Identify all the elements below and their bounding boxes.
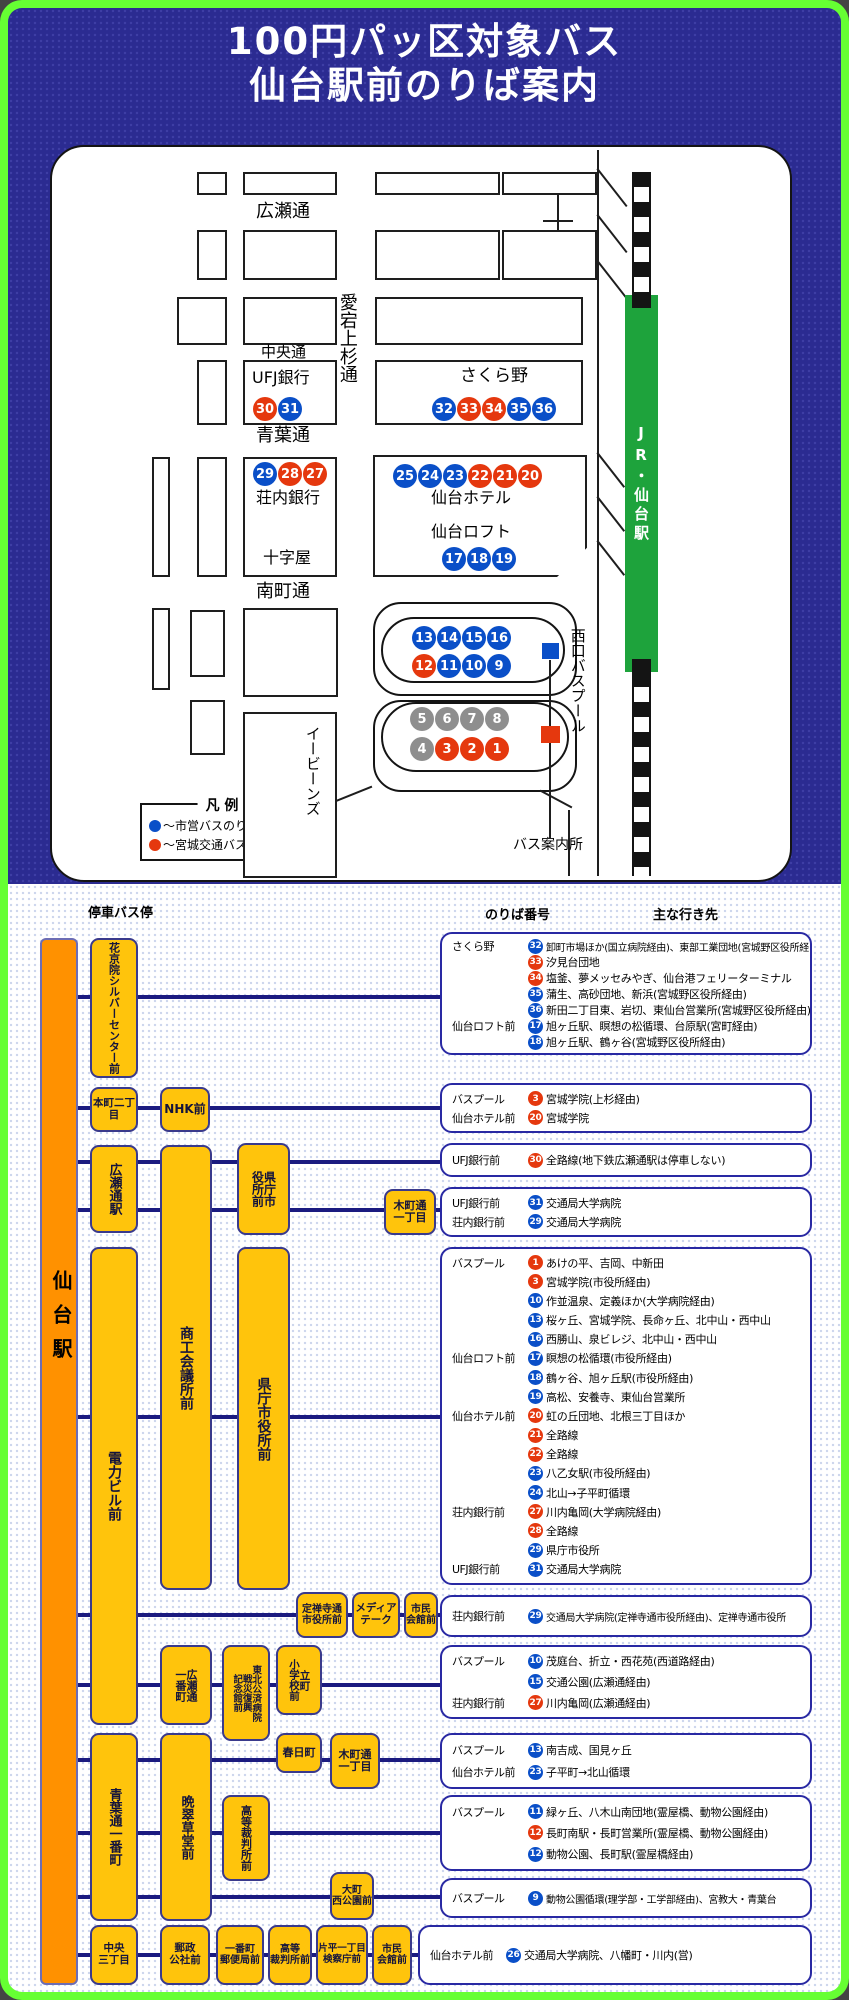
map-label-バス案内所: バス案内所 <box>513 838 583 853</box>
stand-number-badge-26: 26 <box>506 1948 521 1963</box>
sendai-station-bar: 仙台駅 <box>40 938 78 1985</box>
stand-number-badge-9: 9 <box>528 1891 543 1906</box>
bus-stop-label: 片平一丁目検察庁前 <box>318 1944 366 1965</box>
boarding-point-label: バスプール <box>452 1091 528 1107</box>
city-block <box>190 700 225 755</box>
destination-text: 旭ヶ丘駅、瞑想の松循環、台原駅(宮町経由) <box>546 1018 757 1034</box>
stand-number-badge-3: 3 <box>528 1091 543 1106</box>
stand-number-badge-29: 29 <box>528 1214 543 1229</box>
map-stand-10: 10 <box>462 654 486 678</box>
map-label-十字屋: 十字屋 <box>263 550 311 567</box>
city-block <box>190 610 225 677</box>
bus-stop-label: 一番町郵便局前 <box>220 1944 260 1966</box>
header-stand-number: のりば番号 <box>485 904 550 923</box>
stand-number-badge-11: 11 <box>528 1804 543 1819</box>
map-label-仙台ホテル: 仙台ホテル <box>431 490 511 507</box>
destination-text: 交通局大学病院 <box>546 1561 621 1577</box>
map-stand-19: 19 <box>492 547 516 571</box>
stand-number-badge-35: 35 <box>528 987 543 1002</box>
destination-row: 荘内銀行前29交通局大学病院 <box>452 1214 800 1230</box>
destination-text: 虹の丘団地、北根三丁目ほか <box>546 1408 685 1424</box>
destination-row: バスプール11緑ヶ丘、八木山南団地(霊屋橋、動物公園経由) <box>452 1804 800 1820</box>
map-label-仙台ロフト: 仙台ロフト <box>431 524 511 541</box>
bus-stop-label: 広瀬通駅 <box>108 1163 121 1215</box>
bus-stop-label: 立町小学校前 <box>289 1659 310 1701</box>
bus-stop-本町二丁目: 本町二丁目 <box>90 1087 138 1132</box>
stand-number-badge-29: 29 <box>528 1543 543 1558</box>
map-label-さくら野: さくら野 <box>460 368 528 386</box>
boarding-point-label: 仙台ロフト前 <box>452 1018 528 1034</box>
bus-stop-県庁市役所前: 県庁市役所前 <box>237 1247 290 1590</box>
bus-info-marker-red <box>541 726 560 743</box>
map-stand-22: 22 <box>468 464 492 488</box>
boarding-point-label: さくら野 <box>452 938 528 954</box>
bus-info-marker-blue <box>542 643 559 659</box>
map-label-南町通: 南町通 <box>256 583 310 602</box>
destination-text: 汐見台団地 <box>546 954 600 970</box>
boarding-point-label: 仙台ホテル前 <box>452 1408 528 1424</box>
route-info-box-4: UFJ銀行前31交通局大学病院荘内銀行前29交通局大学病院 <box>440 1187 812 1237</box>
bus-stop-春日町: 春日町 <box>276 1733 322 1773</box>
destination-text: 南吉成、国見ヶ丘 <box>546 1742 632 1758</box>
bus-stop-label: 本町二丁目 <box>92 1098 136 1122</box>
bus-stop-NHK前: NHK前 <box>160 1087 210 1132</box>
destination-text: 交通局大学病院 <box>546 1214 621 1230</box>
bus-stop-label: 花京院シルバーセンター前 <box>109 942 120 1074</box>
stand-number-badge-23: 23 <box>528 1466 543 1481</box>
bus-stop-木町通一丁目: 木町通一丁目 <box>384 1189 436 1235</box>
destination-text: 塩釜、夢メッセみやぎ、仙台港フェリーターミナル <box>546 970 792 986</box>
map-stand-1: 1 <box>485 737 509 761</box>
bus-stop-広瀬通一番町: 広瀬通一番町 <box>160 1645 212 1725</box>
route-info-box-1: さくら野32卸町市場ほか(国立病院経由)、東部工業団地(宮城野区役所経由)33汐… <box>440 932 812 1055</box>
destination-text: あけの平、吉岡、中新田 <box>546 1255 664 1271</box>
bus-stop-広瀬通駅: 広瀬通駅 <box>90 1145 138 1233</box>
destination-row: 13桜ヶ丘、宮城学院、長命ヶ丘、北中山・西中山 <box>452 1312 800 1328</box>
bus-stop-label: 木町通一丁目 <box>339 1749 372 1774</box>
boarding-point-label: 仙台ロフト前 <box>452 1350 528 1366</box>
boarding-point-label: 仙台ホテル前 <box>430 1947 506 1963</box>
destination-row: 23八乙女駅(市役所経由) <box>452 1465 800 1481</box>
municipal-bus-dot-icon <box>149 820 161 832</box>
stand-number-badge-29: 29 <box>528 1609 543 1624</box>
boarding-point-label: 荘内銀行前 <box>452 1504 528 1520</box>
destination-text: 蒲生、高砂団地、新浜(宮城野区役所経由) <box>546 986 747 1002</box>
boarding-point-label: バスプール <box>452 1255 528 1271</box>
bus-stop-label: 春日町 <box>283 1747 316 1759</box>
destination-row: 29県庁市役所 <box>452 1542 800 1558</box>
boarding-point-label: UFJ銀行前 <box>452 1561 528 1577</box>
map-label-広瀬通: 広瀬通 <box>256 203 310 222</box>
city-block <box>197 360 227 425</box>
bus-stop-市民会館前: 市民会館前 <box>372 1925 412 1985</box>
boarding-point-label: 仙台ホテル前 <box>452 1110 528 1126</box>
destination-row: 荘内銀行前27川内亀岡(広瀬通経由) <box>452 1695 800 1711</box>
destination-row: 仙台ホテル前20虹の丘団地、北根三丁目ほか <box>452 1408 800 1424</box>
legend-title: 凡 例 <box>198 795 247 815</box>
sendai-station-label: 仙台駅 <box>42 1270 76 1372</box>
city-block <box>197 457 227 577</box>
destination-row: 荘内銀行前29交通局大学病院(定禅寺通市役所経由)、定禅寺通市役所 <box>452 1608 800 1624</box>
stand-number-badge-30: 30 <box>528 1153 543 1168</box>
map-stand-13: 13 <box>412 626 436 650</box>
city-block <box>243 608 338 697</box>
boarding-point-label: バスプール <box>452 1653 528 1669</box>
route-info-box-6: 荘内銀行前29交通局大学病院(定禅寺通市役所経由)、定禅寺通市役所 <box>440 1595 812 1637</box>
bus-info-pointer-line <box>549 660 551 838</box>
stand-number-badge-3: 3 <box>528 1274 543 1289</box>
map-stand-32: 32 <box>432 397 456 421</box>
map-stand-16: 16 <box>487 626 511 650</box>
bus-stop-県庁市役所前: 県庁市役所前 <box>237 1143 290 1235</box>
destination-row: バスプール9動物公園循環(理学部・工学部経由)、宮教大・青葉台 <box>452 1890 800 1906</box>
destination-row: 10作並温泉、定義ほか(大学病院経由) <box>452 1293 800 1309</box>
map-label-中央通: 中央通 <box>261 345 306 361</box>
map-stand-36: 36 <box>532 397 556 421</box>
map-stand-15: 15 <box>462 626 486 650</box>
map-stand-35: 35 <box>507 397 531 421</box>
bus-stop-label: 電力ビル前 <box>107 1451 121 1521</box>
destination-row: 18旭ヶ丘駅、鶴ヶ谷(宮城野区役所経由) <box>452 1034 800 1050</box>
route-info-box-11: 仙台ホテル前26交通局大学病院、八幡町・川内(営) <box>418 1925 812 1985</box>
destination-text: 全路線 <box>546 1446 578 1462</box>
stand-number-badge-31: 31 <box>528 1562 543 1577</box>
bus-stop-メディアテーク: メディアテーク <box>352 1592 400 1638</box>
north-arrow-cross <box>543 220 573 222</box>
bus-stop-label: 高等裁判所前 <box>270 1944 310 1966</box>
destination-row: 28全路線 <box>452 1523 800 1539</box>
bus-stop-高等裁判所前: 高等裁判所前 <box>222 1795 270 1881</box>
boarding-point-label: UFJ銀行前 <box>452 1152 528 1168</box>
stand-number-badge-1: 1 <box>528 1255 543 1270</box>
city-block <box>243 230 337 280</box>
destination-row: 24北山→子平町循環 <box>452 1485 800 1501</box>
destination-row: 16西勝山、泉ビレジ、北中山・西中山 <box>452 1331 800 1347</box>
map-stand-3: 3 <box>435 737 459 761</box>
city-block <box>197 230 227 280</box>
destination-text: 交通局大学病院(定禅寺通市役所経由)、定禅寺通市役所 <box>546 1609 786 1624</box>
stand-number-badge-17: 17 <box>528 1351 543 1366</box>
destination-text: 茂庭台、折立・西花苑(西道路経由) <box>546 1653 714 1669</box>
railway-checker-bottom <box>632 672 651 876</box>
map-stand-12: 12 <box>412 654 436 678</box>
bus-stop-晩翠草堂前: 晩翠草堂前 <box>160 1733 212 1921</box>
bus-stop-大町西公園前: 大町西公園前 <box>330 1872 374 1920</box>
jr-sendai-station-bar: JR・仙台駅 <box>625 295 658 672</box>
stand-number-badge-23: 23 <box>528 1765 543 1780</box>
bus-stop-label: 中央三丁目 <box>98 1943 130 1967</box>
header-stops: 停車バス停 <box>88 902 153 921</box>
bus-stop-label: NHK前 <box>164 1103 205 1116</box>
destination-row: 仙台ホテル前23子平町→北山循環 <box>452 1764 800 1780</box>
boarding-point-label: 荘内銀行前 <box>452 1608 528 1624</box>
map-stand-30: 30 <box>253 397 277 421</box>
destination-row: 12動物公園、長町駅(霊屋橋経由) <box>452 1846 800 1862</box>
map-label-青葉通: 青葉通 <box>256 427 310 446</box>
bus-stop-label: 青葉通一番町 <box>108 1788 121 1866</box>
destination-text: 交通局大学病院、八幡町・川内(営) <box>524 1947 692 1963</box>
stand-number-badge-12: 12 <box>528 1847 543 1862</box>
map-label-UFJ銀行: UFJ銀行 <box>252 370 310 387</box>
bus-guide-poster: 100円パッ区対象バス 仙台駅前のりば案内 JR・仙台駅 N 凡 例 〜市営バス… <box>0 0 849 2000</box>
city-block <box>243 297 337 345</box>
stand-number-badge-22: 22 <box>528 1447 543 1462</box>
stand-number-badge-20: 20 <box>528 1110 543 1125</box>
destination-row: 仙台ホテル前20宮城学院 <box>452 1110 800 1126</box>
destination-row: バスプール1あけの平、吉岡、中新田 <box>452 1255 800 1271</box>
stand-number-badge-17: 17 <box>528 1019 543 1034</box>
bus-stop-郵政公社前: 郵政公社前 <box>160 1925 210 1985</box>
stand-number-badge-18: 18 <box>528 1035 543 1050</box>
railway-checker-top <box>632 172 651 295</box>
map-stand-25: 25 <box>393 464 417 488</box>
bus-stop-label: 東北公済病院戦災復興記念館前 <box>232 1665 261 1722</box>
city-block <box>152 608 170 690</box>
stand-number-badge-20: 20 <box>528 1408 543 1423</box>
destination-text: 宮城学院 <box>546 1110 589 1126</box>
header-destinations: 主な行き先 <box>653 904 718 923</box>
destination-row: 仙台ロフト前17旭ヶ丘駅、瞑想の松循環、台原駅(宮町経由) <box>452 1018 800 1034</box>
stand-number-badge-34: 34 <box>528 971 543 986</box>
map-stand-21: 21 <box>493 464 517 488</box>
map-label-荘内銀行: 荘内銀行 <box>256 490 320 507</box>
destination-row: UFJ銀行前31交通局大学病院 <box>452 1561 800 1577</box>
rail-cap-bottom <box>632 659 651 672</box>
map-stand-7: 7 <box>460 707 484 731</box>
bus-stop-木町通一丁目: 木町通一丁目 <box>330 1733 380 1789</box>
stand-number-badge-24: 24 <box>528 1485 543 1500</box>
destination-text: 川内亀岡(大学病院経由) <box>546 1504 661 1520</box>
destination-text: 宮城学院(市役所経由) <box>546 1274 650 1290</box>
map-stand-20: 20 <box>518 464 542 488</box>
bus-stop-label: 商工会議所前 <box>179 1326 193 1410</box>
destination-text: 動物公園、長町駅(霊屋橋経由) <box>546 1846 693 1862</box>
boarding-point-label: 荘内銀行前 <box>452 1214 528 1230</box>
city-block <box>375 172 500 195</box>
city-block <box>243 712 337 878</box>
destination-row: バスプール10茂庭台、折立・西花苑(西道路経由) <box>452 1653 800 1669</box>
stand-number-badge-15: 15 <box>528 1674 543 1689</box>
bus-stop-定禅寺通市役所前: 定禅寺通市役所前 <box>296 1592 348 1638</box>
destination-row: 33汐見台団地 <box>452 954 800 970</box>
boarding-point-label: 仙台ホテル前 <box>452 1764 528 1780</box>
destination-row: 22全路線 <box>452 1446 800 1462</box>
destination-text: 八乙女駅(市役所経由) <box>546 1465 650 1481</box>
map-stand-34: 34 <box>482 397 506 421</box>
stand-number-badge-27: 27 <box>528 1504 543 1519</box>
route-info-box-5: バスプール1あけの平、吉岡、中新田3宮城学院(市役所経由)10作並温泉、定義ほか… <box>440 1247 812 1585</box>
city-block <box>152 457 170 577</box>
bus-stop-label: 広瀬通一番町 <box>175 1669 197 1702</box>
stand-number-badge-33: 33 <box>528 955 543 970</box>
destination-text: 県庁市役所 <box>546 1542 600 1558</box>
city-block <box>243 172 337 195</box>
destination-text: 全路線 <box>546 1427 578 1443</box>
bus-stop-高等裁判所前: 高等裁判所前 <box>268 1925 312 1985</box>
map-stand-14: 14 <box>437 626 461 650</box>
destination-row: 21全路線 <box>452 1427 800 1443</box>
destination-text: 新田二丁目東、岩切、東仙台営業所(宮城野区役所経由) <box>546 1002 811 1018</box>
city-block <box>502 172 597 195</box>
miyagi-kotsu-dot-icon <box>149 839 161 851</box>
bus-stop-label: 市民会館前 <box>406 1604 436 1626</box>
map-label-イービーンズ: イービーンズ <box>304 726 320 816</box>
destination-text: 長町南駅・長町営業所(霊屋橋、動物公園経由) <box>546 1825 768 1841</box>
destination-text: 瞑想の松循環(市役所経由) <box>546 1350 672 1366</box>
map-label-愛宕上杉通: 愛宕上杉通 <box>337 293 356 383</box>
destination-text: 北山→子平町循環 <box>546 1485 630 1501</box>
destination-text: 桜ヶ丘、宮城学院、長命ヶ丘、北中山・西中山 <box>546 1312 771 1328</box>
map-label-西口バスプール: 西口バスプール <box>569 628 585 733</box>
city-block <box>177 297 227 345</box>
boarding-point-label: バスプール <box>452 1742 528 1758</box>
city-block <box>375 230 500 280</box>
map-stand-5: 5 <box>410 707 434 731</box>
stand-number-badge-36: 36 <box>528 1003 543 1018</box>
boarding-point-label: バスプール <box>452 1804 528 1820</box>
map-stand-18: 18 <box>467 547 491 571</box>
bus-stop-電力ビル前: 電力ビル前 <box>90 1247 138 1725</box>
destination-text: 全路線 <box>546 1523 578 1539</box>
bus-stop-東北公済病院戦災復興記念館前: 東北公済病院戦災復興記念館前 <box>222 1645 270 1741</box>
destination-text: 西勝山、泉ビレジ、北中山・西中山 <box>546 1331 717 1347</box>
city-block <box>375 297 583 345</box>
bus-stop-label: 高等裁判所前 <box>241 1805 252 1871</box>
destination-row: UFJ銀行前30全路線(地下鉄広瀬通駅は停車しない) <box>452 1152 800 1168</box>
map-stand-24: 24 <box>418 464 442 488</box>
bus-stop-label: 大町西公園前 <box>332 1885 372 1907</box>
destination-text: 子平町→北山循環 <box>546 1764 630 1780</box>
rail-cap-top <box>632 295 651 308</box>
map-stand-23: 23 <box>443 464 467 488</box>
destination-row: 15交通公園(広瀬通経由) <box>452 1674 800 1690</box>
title-line1: 100円パッ区対象バス <box>0 20 849 64</box>
jr-station-label: JR・仙台駅 <box>631 424 652 544</box>
bus-stop-片平一丁目検察庁前: 片平一丁目検察庁前 <box>316 1925 368 1985</box>
bus-stop-青葉通一番町: 青葉通一番町 <box>90 1733 138 1921</box>
destination-text: 旭ヶ丘駅、鶴ヶ谷(宮城野区役所経由) <box>546 1034 725 1050</box>
bus-stop-label: 晩翠草堂前 <box>180 1795 193 1860</box>
destination-row: 3宮城学院(市役所経由) <box>452 1274 800 1290</box>
destination-row: 仙台ロフト前17瞑想の松循環(市役所経由) <box>452 1350 800 1366</box>
bus-stop-label: 県庁市役所前 <box>252 1171 276 1207</box>
destination-row: 34塩釜、夢メッセみやぎ、仙台港フェリーターミナル <box>452 970 800 986</box>
bus-stop-市民会館前: 市民会館前 <box>404 1592 438 1638</box>
destination-text: 全路線(地下鉄広瀬通駅は停車しない) <box>546 1152 725 1168</box>
stand-number-badge-12: 12 <box>528 1825 543 1840</box>
destination-text: 作並温泉、定義ほか(大学病院経由) <box>546 1293 714 1309</box>
stand-number-badge-18: 18 <box>528 1370 543 1385</box>
bus-stop-label: 木町通一丁目 <box>394 1200 427 1225</box>
bus-stop-商工会議所前: 商工会議所前 <box>160 1145 212 1590</box>
stand-number-badge-19: 19 <box>528 1389 543 1404</box>
bus-stop-立町小学校前: 立町小学校前 <box>276 1645 322 1715</box>
map-stand-17: 17 <box>442 547 466 571</box>
stand-number-badge-10: 10 <box>528 1293 543 1308</box>
destination-text: 緑ヶ丘、八木山南団地(霊屋橋、動物公園経由) <box>546 1804 768 1820</box>
stand-number-badge-13: 13 <box>528 1743 543 1758</box>
map-stand-8: 8 <box>485 707 509 731</box>
destination-text: 交通公園(広瀬通経由) <box>546 1674 650 1690</box>
destination-text: 交通局大学病院 <box>546 1195 621 1211</box>
bus-stop-label: 郵政公社前 <box>169 1943 201 1967</box>
map-stand-11: 11 <box>437 654 461 678</box>
boarding-point-label: UFJ銀行前 <box>452 1195 528 1211</box>
route-info-box-2: バスプール3宮城学院(上杉経由)仙台ホテル前20宮城学院 <box>440 1083 812 1133</box>
map-stand-28: 28 <box>278 462 302 486</box>
destination-row: 18鶴ヶ谷、旭ヶ丘駅(市役所経由) <box>452 1370 800 1386</box>
route-info-box-3: UFJ銀行前30全路線(地下鉄広瀬通駅は停車しない) <box>440 1143 812 1177</box>
destination-row: 35蒲生、高砂団地、新浜(宮城野区役所経由) <box>452 986 800 1002</box>
city-block <box>502 230 597 280</box>
destination-text: 川内亀岡(広瀬通経由) <box>546 1695 650 1711</box>
boarding-point-label: バスプール <box>452 1890 528 1906</box>
destination-row: バスプール3宮城学院(上杉経由) <box>452 1091 800 1107</box>
map-stand-27: 27 <box>303 462 327 486</box>
destination-text: 卸町市場ほか(国立病院経由)、東部工業団地(宮城野区役所経由) <box>546 939 812 954</box>
stand-number-badge-28: 28 <box>528 1523 543 1538</box>
route-info-box-9: バスプール11緑ヶ丘、八木山南団地(霊屋橋、動物公園経由)12長町南駅・長町営業… <box>440 1795 812 1871</box>
poster-title: 100円パッ区対象バス 仙台駅前のりば案内 <box>0 20 849 107</box>
bus-stop-中央三丁目: 中央三丁目 <box>90 1925 138 1985</box>
bus-stop-label: メディアテーク <box>355 1603 396 1627</box>
stand-number-badge-21: 21 <box>528 1428 543 1443</box>
destination-row: UFJ銀行前31交通局大学病院 <box>452 1195 800 1211</box>
stand-number-badge-16: 16 <box>528 1332 543 1347</box>
route-info-box-8: バスプール13南吉成、国見ヶ丘仙台ホテル前23子平町→北山循環 <box>440 1733 812 1789</box>
stand-number-badge-32: 32 <box>528 939 543 954</box>
destination-row: 12長町南駅・長町営業所(霊屋橋、動物公園経由) <box>452 1825 800 1841</box>
map-stand-29: 29 <box>253 462 277 486</box>
destination-text: 鶴ヶ谷、旭ヶ丘駅(市役所経由) <box>546 1370 693 1386</box>
title-line2: 仙台駅前のりば案内 <box>0 64 849 108</box>
destination-row: 仙台ホテル前26交通局大学病院、八幡町・川内(営) <box>430 1947 800 1963</box>
destination-text: 動物公園循環(理学部・工学部経由)、宮教大・青葉台 <box>546 1891 776 1906</box>
map-stand-33: 33 <box>457 397 481 421</box>
stand-number-badge-31: 31 <box>528 1195 543 1210</box>
destination-row: バスプール13南吉成、国見ヶ丘 <box>452 1742 800 1758</box>
destination-row: さくら野32卸町市場ほか(国立病院経由)、東部工業団地(宮城野区役所経由) <box>452 938 800 954</box>
stand-number-badge-13: 13 <box>528 1313 543 1328</box>
destination-row: 荘内銀行前27川内亀岡(大学病院経由) <box>452 1504 800 1520</box>
city-block <box>197 172 227 195</box>
bus-stop-一番町郵便局前: 一番町郵便局前 <box>216 1925 264 1985</box>
map-stand-31: 31 <box>278 397 302 421</box>
stand-number-badge-10: 10 <box>528 1654 543 1669</box>
bus-stop-花京院シルバーセンター前: 花京院シルバーセンター前 <box>90 938 138 1078</box>
destination-text: 宮城学院(上杉経由) <box>546 1091 640 1107</box>
bus-stop-label: 県庁市役所前 <box>257 1377 271 1461</box>
destination-row: 36新田二丁目東、岩切、東仙台営業所(宮城野区役所経由) <box>452 1002 800 1018</box>
bus-stop-label: 市民会館前 <box>377 1944 407 1966</box>
boarding-point-label: 荘内銀行前 <box>452 1695 528 1711</box>
route-info-box-7: バスプール10茂庭台、折立・西花苑(西道路経由)15交通公園(広瀬通経由)荘内銀… <box>440 1645 812 1719</box>
stand-number-badge-27: 27 <box>528 1695 543 1710</box>
destination-text: 高松、安養寺、東仙台営業所 <box>546 1389 685 1405</box>
map-stand-2: 2 <box>460 737 484 761</box>
route-info-box-10: バスプール9動物公園循環(理学部・工学部経由)、宮教大・青葉台 <box>440 1878 812 1918</box>
map-stand-6: 6 <box>435 707 459 731</box>
map-stand-4: 4 <box>410 737 434 761</box>
bus-stop-label: 定禅寺通市役所前 <box>302 1604 342 1626</box>
destination-row: 19高松、安養寺、東仙台営業所 <box>452 1389 800 1405</box>
map-stand-9: 9 <box>487 654 511 678</box>
